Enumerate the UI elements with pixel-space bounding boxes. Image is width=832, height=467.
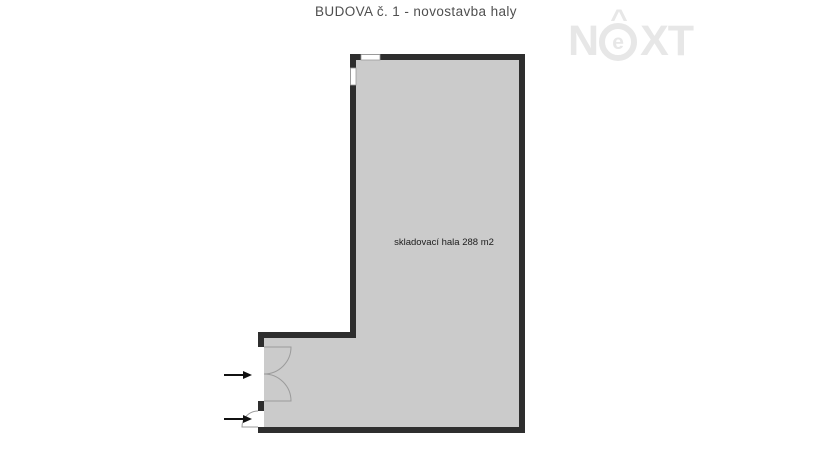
window-left-icon bbox=[351, 68, 357, 85]
floorplan-page: BUDOVA č. 1 - novostavba haly N ^ e X T bbox=[0, 0, 832, 467]
entrance-arrow-lower-icon bbox=[224, 415, 252, 423]
wall-left-lower-segment bbox=[258, 332, 264, 347]
hall-interior-lower-left bbox=[264, 338, 356, 427]
entrance-arrow-upper-head bbox=[243, 371, 252, 379]
wall-left-upper bbox=[350, 54, 356, 338]
window-top-icon bbox=[361, 55, 380, 61]
floorplan-drawing bbox=[0, 0, 832, 467]
entrance-arrow-upper-icon bbox=[224, 371, 252, 379]
wall-bottom bbox=[258, 427, 525, 433]
wall-notch-horizontal bbox=[258, 332, 356, 338]
wall-right bbox=[519, 54, 525, 433]
room-area-label: skladovací hala 288 m2 bbox=[374, 237, 514, 248]
entrance-arrow-lower-head bbox=[243, 415, 252, 423]
wall-door-jamb bbox=[258, 401, 264, 411]
